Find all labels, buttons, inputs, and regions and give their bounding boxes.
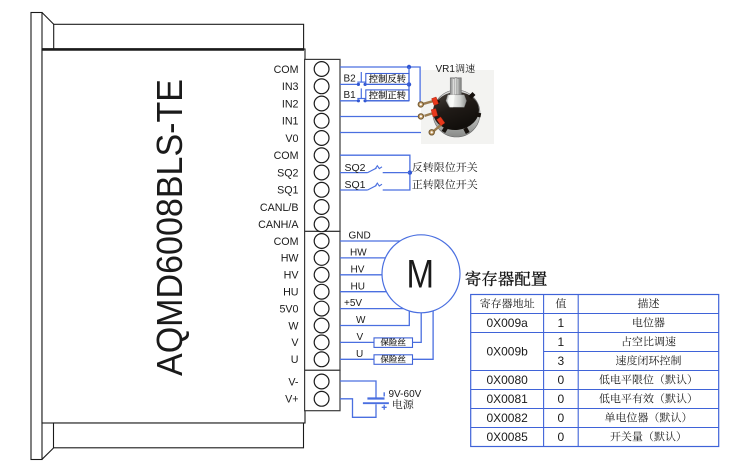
svg-text:U: U <box>356 349 363 360</box>
svg-text:0X0082: 0X0082 <box>486 411 528 425</box>
svg-text:V: V <box>357 332 364 343</box>
svg-text:+5V: +5V <box>344 298 362 309</box>
svg-text:3: 3 <box>558 354 565 368</box>
svg-text:0X0080: 0X0080 <box>486 373 528 387</box>
svg-text:HV: HV <box>284 270 300 282</box>
svg-text:W: W <box>288 320 299 332</box>
svg-text:0X009a: 0X009a <box>486 316 528 330</box>
svg-text:IN3: IN3 <box>282 81 299 93</box>
svg-text:HU: HU <box>283 287 298 299</box>
svg-text:IN2: IN2 <box>282 98 299 110</box>
svg-text:0: 0 <box>558 373 565 387</box>
svg-text:IN1: IN1 <box>282 116 299 128</box>
svg-text:M: M <box>407 252 435 296</box>
svg-text:0X0085: 0X0085 <box>486 430 528 444</box>
svg-text:1: 1 <box>558 335 565 349</box>
svg-text:V-: V- <box>288 376 299 388</box>
svg-text:V+: V+ <box>285 394 298 406</box>
svg-text:AQMD6008BLS-TE: AQMD6008BLS-TE <box>149 79 190 376</box>
svg-text:COM: COM <box>274 236 299 248</box>
svg-text:VR1: VR1 <box>436 64 456 75</box>
svg-text:W: W <box>356 315 366 326</box>
svg-text:SQ1: SQ1 <box>277 185 298 197</box>
svg-text:0X009b: 0X009b <box>486 344 528 358</box>
svg-text:HW: HW <box>350 248 367 259</box>
svg-text:5V0: 5V0 <box>279 303 298 315</box>
svg-text:GND: GND <box>349 231 371 242</box>
svg-text:0: 0 <box>558 411 565 425</box>
svg-text:9V-60V: 9V-60V <box>389 389 422 400</box>
svg-text:0: 0 <box>558 430 565 444</box>
svg-text:V: V <box>291 337 299 349</box>
svg-text:SQ2: SQ2 <box>277 167 298 179</box>
svg-text:U: U <box>291 354 299 366</box>
svg-text:CANL/B: CANL/B <box>260 202 299 214</box>
svg-text:SQ1: SQ1 <box>345 179 366 191</box>
svg-text:1: 1 <box>558 316 565 330</box>
svg-text:0X0081: 0X0081 <box>486 392 528 406</box>
svg-text:HV: HV <box>351 264 365 275</box>
svg-text:0: 0 <box>558 392 565 406</box>
svg-text:HU: HU <box>351 281 365 292</box>
svg-text:CANH/A: CANH/A <box>258 219 299 231</box>
svg-text:B1: B1 <box>344 90 357 101</box>
svg-text:COM: COM <box>274 150 299 162</box>
svg-text:V0: V0 <box>285 133 298 145</box>
svg-text:HW: HW <box>281 253 300 265</box>
svg-text:B2: B2 <box>344 73 357 84</box>
svg-text:SQ2: SQ2 <box>345 162 366 174</box>
svg-text:COM: COM <box>274 64 299 76</box>
